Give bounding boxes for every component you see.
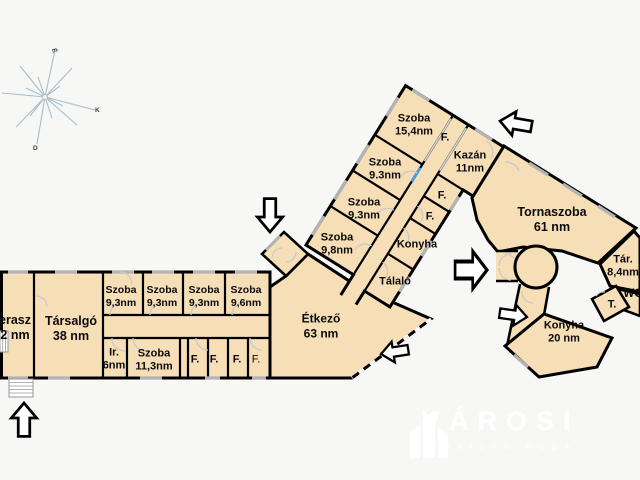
room-label-szoba-a2: Szoba9,3nm xyxy=(147,284,178,310)
brand-logo: VÁROSI INGATLANIRODA xyxy=(408,398,580,452)
room-label-szoba-a3: Szoba9,3nm xyxy=(189,284,220,310)
room-label-iroda: Ir.6nm xyxy=(103,347,126,374)
brand-logo-subtitle: INGATLANIRODA xyxy=(422,442,580,452)
room-label-konyha-20: Konyha20 nm xyxy=(544,320,584,347)
room-label-wc: WC xyxy=(623,287,640,301)
entrance-arrow-bottom-left xyxy=(11,403,36,436)
room-label-tornaszoba: Tornaszoba61 nm xyxy=(517,205,586,236)
room-label-talalo: Tálaló xyxy=(379,275,411,288)
room-label-f-w2: F. xyxy=(426,210,435,223)
room-label-tar: Tár.8,4nm xyxy=(607,254,639,281)
room-label-t: T. xyxy=(608,298,617,311)
room-label-f-w1: F. xyxy=(438,189,447,202)
room-label-szoba-93b: Szoba9.3nm xyxy=(348,197,380,224)
room-label-f1: F. xyxy=(191,353,200,366)
compass-east-label: K xyxy=(95,107,100,114)
room-label-tarsalgo: Társalgó38 nm xyxy=(45,314,97,345)
entrance-arrow-vestibule xyxy=(257,199,282,232)
room-label-terasz: erasz2 nm xyxy=(0,313,31,344)
room-label-f4: F. xyxy=(252,353,261,366)
room-label-szoba-15: Szoba15,4nm xyxy=(395,113,433,140)
room-label-f-top: F. xyxy=(441,131,450,144)
staircase-main xyxy=(9,379,33,397)
entrance-arrow-round-room xyxy=(455,251,487,288)
room-label-f2: F. xyxy=(210,353,219,366)
room-label-szoba-a4: Szoba9,6nm xyxy=(231,284,262,310)
room-label-szoba-b: Szoba11,3nm xyxy=(135,348,172,375)
floorplan-canvas: É K D xyxy=(0,0,640,480)
room-label-etkezo: Étkező63 nm xyxy=(302,311,341,340)
room-label-szoba-98: Szoba9,8nm xyxy=(321,232,353,259)
compass-north-label: É xyxy=(50,47,60,54)
compass-south-label: D xyxy=(33,145,38,152)
room-label-szoba-93a: Szoba9.3nm xyxy=(369,157,401,184)
round-room xyxy=(515,246,557,288)
room-label-kazan: Kazán11nm xyxy=(454,150,486,177)
compass-rose xyxy=(2,50,95,144)
entrance-arrow-top xyxy=(498,109,534,138)
room-label-szoba-a1: Szoba9,3nm xyxy=(106,284,137,310)
room-label-f3: F. xyxy=(233,353,242,366)
room-label-konyha-wing: Konyha xyxy=(397,238,437,251)
